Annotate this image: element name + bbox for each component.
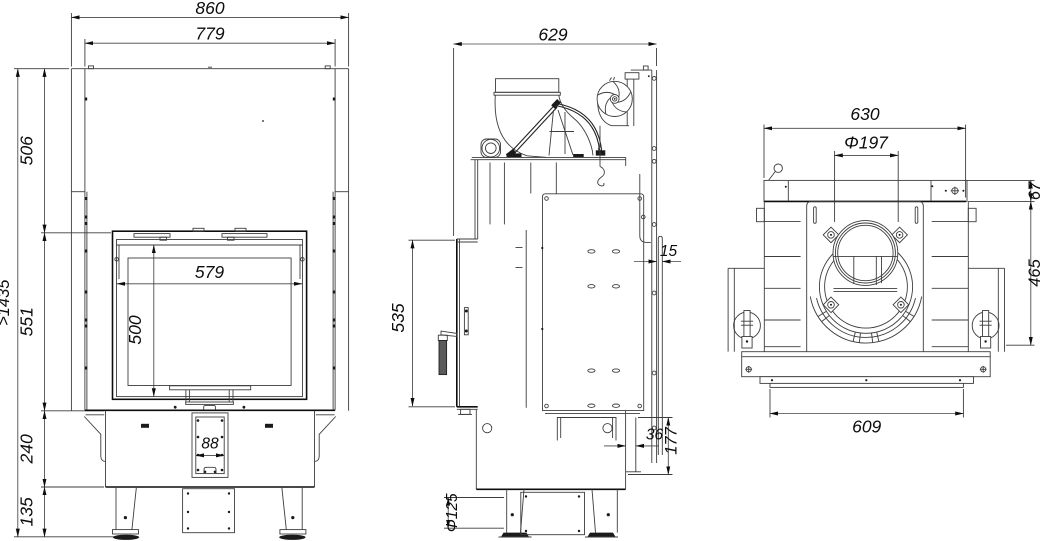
svg-text:860: 860 (195, 0, 224, 18)
svg-text:67: 67 (1026, 181, 1044, 200)
svg-text:Φ197: Φ197 (844, 133, 889, 153)
svg-text:Φ125: Φ125 (444, 493, 461, 532)
svg-text:506: 506 (17, 136, 37, 165)
svg-text:240: 240 (17, 434, 37, 464)
svg-text:135: 135 (17, 497, 37, 526)
svg-text:551: 551 (17, 307, 37, 336)
svg-text:535: 535 (388, 303, 408, 332)
svg-text:88: 88 (201, 436, 219, 453)
svg-text:465: 465 (1026, 258, 1044, 286)
svg-text:>1435: >1435 (0, 279, 13, 326)
svg-text:177: 177 (663, 426, 681, 454)
svg-text:629: 629 (538, 25, 567, 45)
svg-text:609: 609 (852, 417, 881, 437)
svg-text:500: 500 (125, 315, 145, 344)
svg-text:36: 36 (646, 427, 664, 444)
svg-text:630: 630 (850, 104, 879, 124)
svg-text:779: 779 (195, 24, 224, 44)
svg-text:579: 579 (195, 262, 224, 282)
svg-text:15: 15 (660, 243, 678, 260)
